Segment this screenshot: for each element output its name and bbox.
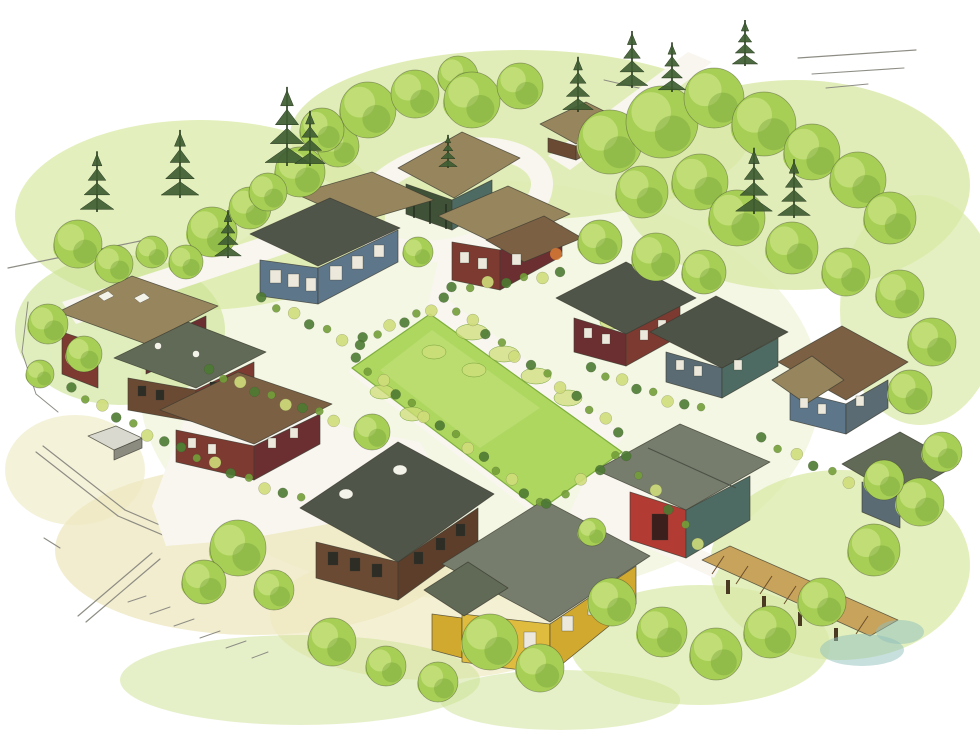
shrub xyxy=(601,373,609,381)
skylight xyxy=(339,489,353,499)
shrub xyxy=(399,318,409,328)
shrub xyxy=(452,430,460,438)
tree xyxy=(353,414,390,450)
shrub xyxy=(611,451,619,459)
shrub xyxy=(234,376,246,388)
shrub xyxy=(536,272,548,284)
shrub xyxy=(662,395,674,407)
shrub xyxy=(336,334,348,346)
shrub xyxy=(259,482,271,494)
shrub xyxy=(193,454,201,462)
shrub xyxy=(384,319,396,331)
window xyxy=(288,274,299,287)
shrub xyxy=(141,429,153,441)
window xyxy=(330,266,342,280)
porch-light-glow xyxy=(550,248,562,260)
tree xyxy=(821,248,870,296)
tree xyxy=(587,578,636,626)
shrub xyxy=(480,329,490,339)
window xyxy=(188,438,196,448)
shrub xyxy=(600,412,612,424)
garden-patch xyxy=(462,363,486,377)
tree xyxy=(253,570,294,610)
shrub xyxy=(498,339,506,347)
tree xyxy=(248,173,287,211)
shrub xyxy=(482,276,494,288)
shrub xyxy=(452,308,460,316)
shrub xyxy=(467,314,479,326)
shrub xyxy=(575,473,587,485)
tree xyxy=(681,250,726,294)
shrub xyxy=(245,474,253,482)
window xyxy=(460,252,469,263)
shrub xyxy=(554,381,566,393)
window xyxy=(800,398,808,408)
tree xyxy=(181,560,226,604)
shrub xyxy=(697,403,705,411)
shrub xyxy=(541,499,551,509)
shrub xyxy=(439,293,449,303)
tree xyxy=(631,233,680,281)
shrub xyxy=(176,442,186,452)
window xyxy=(328,552,338,565)
shrub xyxy=(519,488,529,498)
shrub xyxy=(272,304,280,312)
tree xyxy=(863,460,904,500)
shrub xyxy=(159,436,169,446)
shrub xyxy=(828,467,836,475)
shrub xyxy=(774,445,782,453)
shrub xyxy=(649,388,657,396)
shrub xyxy=(679,399,689,409)
pen-stroke xyxy=(798,50,916,58)
shrub xyxy=(204,364,214,374)
shrub xyxy=(585,406,593,414)
garage-door xyxy=(652,514,668,540)
tree xyxy=(402,237,433,267)
shrub xyxy=(323,325,331,333)
pen-stroke xyxy=(812,68,904,74)
shrub xyxy=(621,451,631,461)
skylight xyxy=(393,465,407,475)
tree xyxy=(907,318,956,366)
site-illustration xyxy=(0,0,980,736)
shrub xyxy=(506,473,518,485)
window xyxy=(268,438,276,448)
shrub xyxy=(408,399,416,407)
window xyxy=(818,404,826,414)
shrub xyxy=(315,407,323,415)
shrub xyxy=(280,399,292,411)
tree xyxy=(515,644,564,692)
window xyxy=(208,444,216,454)
shrub xyxy=(435,421,445,431)
tree xyxy=(168,245,203,279)
tree xyxy=(27,304,68,344)
tree xyxy=(887,370,932,414)
shrub xyxy=(526,360,536,370)
shrub xyxy=(374,330,382,338)
tree xyxy=(496,63,543,109)
window xyxy=(138,386,146,396)
tree xyxy=(417,662,458,702)
shrub xyxy=(304,319,314,329)
window xyxy=(414,552,423,564)
window xyxy=(734,360,742,370)
window xyxy=(306,278,316,291)
shrub xyxy=(544,369,552,377)
tree xyxy=(390,70,439,118)
tree xyxy=(94,245,133,283)
shrub xyxy=(226,468,236,478)
tree xyxy=(65,336,102,372)
window xyxy=(372,564,382,577)
tree xyxy=(307,618,356,666)
tree xyxy=(577,518,606,546)
tree xyxy=(53,220,102,268)
shrub xyxy=(756,432,766,442)
shrub xyxy=(288,307,300,319)
shrub xyxy=(479,452,489,462)
tree xyxy=(797,578,846,626)
window xyxy=(562,616,573,631)
window xyxy=(270,270,281,283)
shrub xyxy=(663,505,673,515)
window xyxy=(350,558,360,571)
shrub xyxy=(351,353,361,363)
shrub xyxy=(613,427,623,437)
shrub xyxy=(631,384,641,394)
shrub xyxy=(650,484,662,496)
shrub xyxy=(425,305,437,317)
shrub xyxy=(447,282,457,292)
tree xyxy=(577,220,622,264)
tree xyxy=(875,270,924,318)
window xyxy=(374,245,384,257)
window xyxy=(856,396,864,406)
shrub xyxy=(298,403,308,413)
shrub xyxy=(595,465,605,475)
shrub xyxy=(412,310,420,318)
window xyxy=(478,258,487,269)
shrub xyxy=(297,493,305,501)
shrub xyxy=(328,415,340,427)
pen-stroke xyxy=(36,394,58,412)
shrub xyxy=(808,461,818,471)
shrub xyxy=(508,351,520,363)
shrub xyxy=(466,284,474,292)
window xyxy=(584,328,592,338)
pergola-post xyxy=(726,580,730,594)
shrub xyxy=(66,382,76,392)
window xyxy=(676,360,684,370)
window xyxy=(436,538,445,550)
shrub xyxy=(418,411,430,423)
window xyxy=(640,330,648,340)
tree xyxy=(25,360,54,388)
tree xyxy=(921,432,962,472)
shrub xyxy=(555,267,565,277)
window xyxy=(352,256,363,269)
shrub xyxy=(278,488,288,498)
shrub xyxy=(219,375,227,383)
window xyxy=(602,334,610,344)
window xyxy=(290,428,298,438)
shrub xyxy=(462,442,474,454)
shrub xyxy=(250,387,260,397)
skylight xyxy=(193,351,200,358)
garden-patch xyxy=(370,385,394,399)
shrub xyxy=(355,340,365,350)
shrub xyxy=(791,448,803,460)
shrub xyxy=(586,362,596,372)
shrub xyxy=(562,490,570,498)
shrub xyxy=(364,368,372,376)
shrub xyxy=(129,419,137,427)
shrub xyxy=(96,399,108,411)
shrub xyxy=(391,389,401,399)
shrub xyxy=(492,467,500,475)
shrub xyxy=(520,273,528,281)
shrub xyxy=(634,471,642,479)
window xyxy=(694,366,702,376)
shrub xyxy=(209,456,221,468)
shrub xyxy=(256,292,266,302)
shrub xyxy=(81,395,89,403)
shrub xyxy=(111,412,121,422)
shrub xyxy=(501,278,511,288)
window xyxy=(456,524,465,536)
window xyxy=(156,390,164,400)
shrub xyxy=(572,391,582,401)
shrub xyxy=(843,477,855,489)
tree xyxy=(365,646,406,686)
skylight xyxy=(155,343,162,350)
window xyxy=(512,254,521,265)
shrub xyxy=(378,374,390,386)
shrub xyxy=(692,538,704,550)
water-wash xyxy=(876,620,924,644)
shrub xyxy=(267,391,275,399)
shrub xyxy=(682,521,690,529)
garden-patch xyxy=(422,345,446,359)
tree xyxy=(135,236,168,268)
illustration-canvas xyxy=(0,0,980,736)
wall-left xyxy=(432,614,462,658)
pine-tree xyxy=(732,20,758,66)
shrub xyxy=(616,374,628,386)
